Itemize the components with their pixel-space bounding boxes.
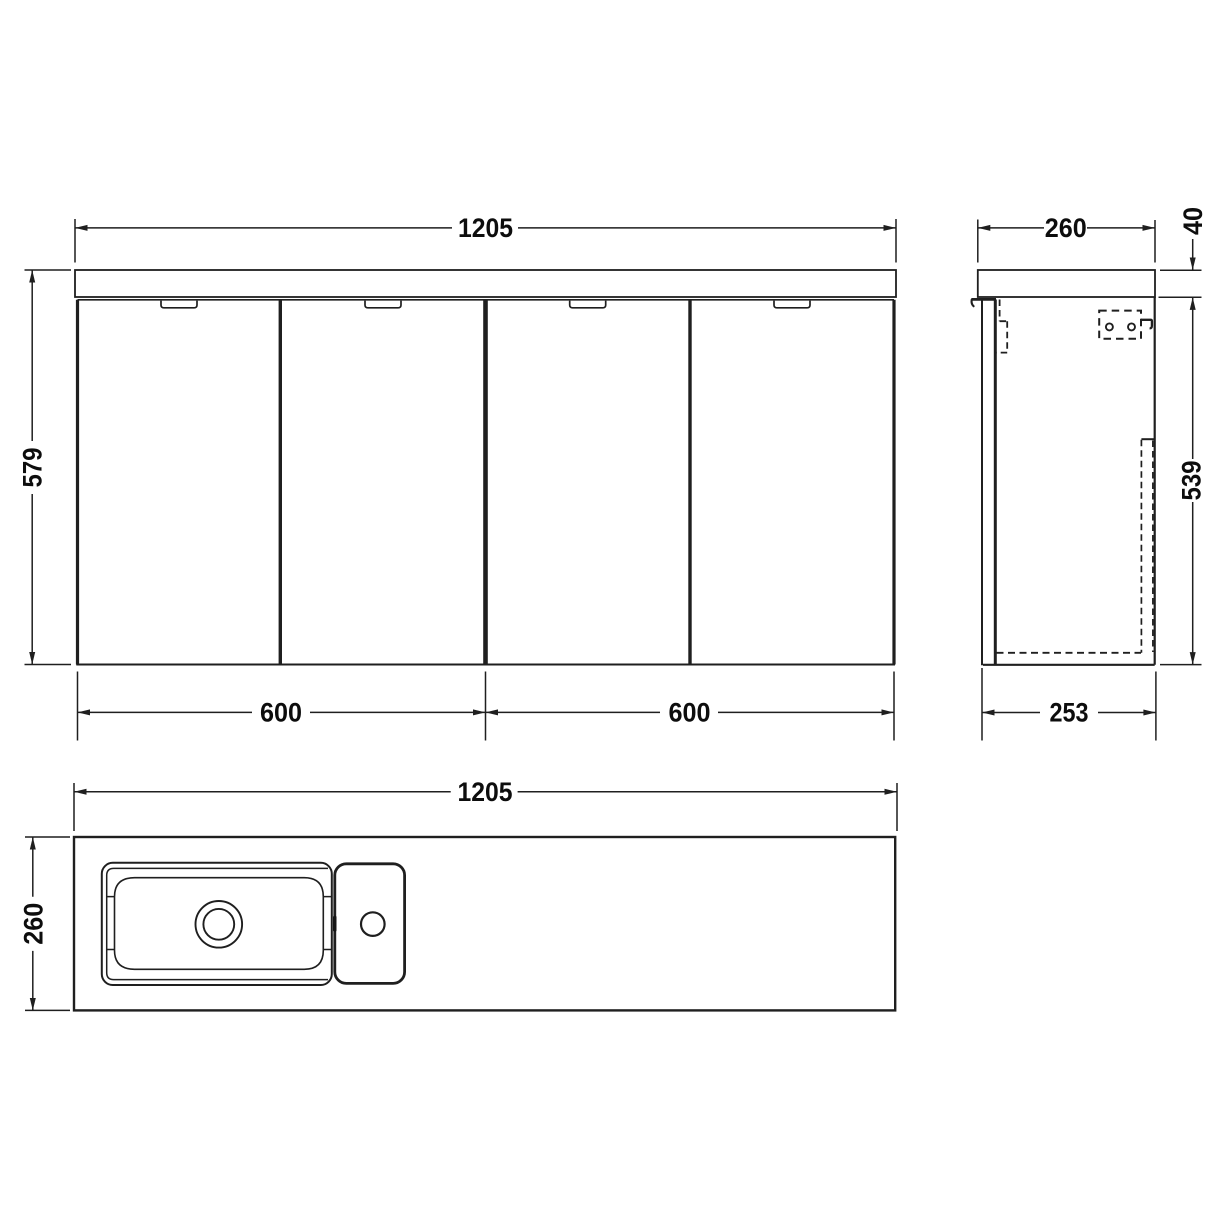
svg-text:260: 260 [1045,213,1087,243]
svg-text:539: 539 [1176,461,1206,501]
svg-text:260: 260 [19,903,49,945]
svg-text:40: 40 [1178,207,1208,235]
svg-text:600: 600 [260,697,302,727]
svg-text:1205: 1205 [458,777,513,807]
svg-text:579: 579 [18,448,48,488]
svg-text:1205: 1205 [458,213,513,243]
svg-text:253: 253 [1050,698,1089,728]
svg-text:600: 600 [669,697,711,727]
